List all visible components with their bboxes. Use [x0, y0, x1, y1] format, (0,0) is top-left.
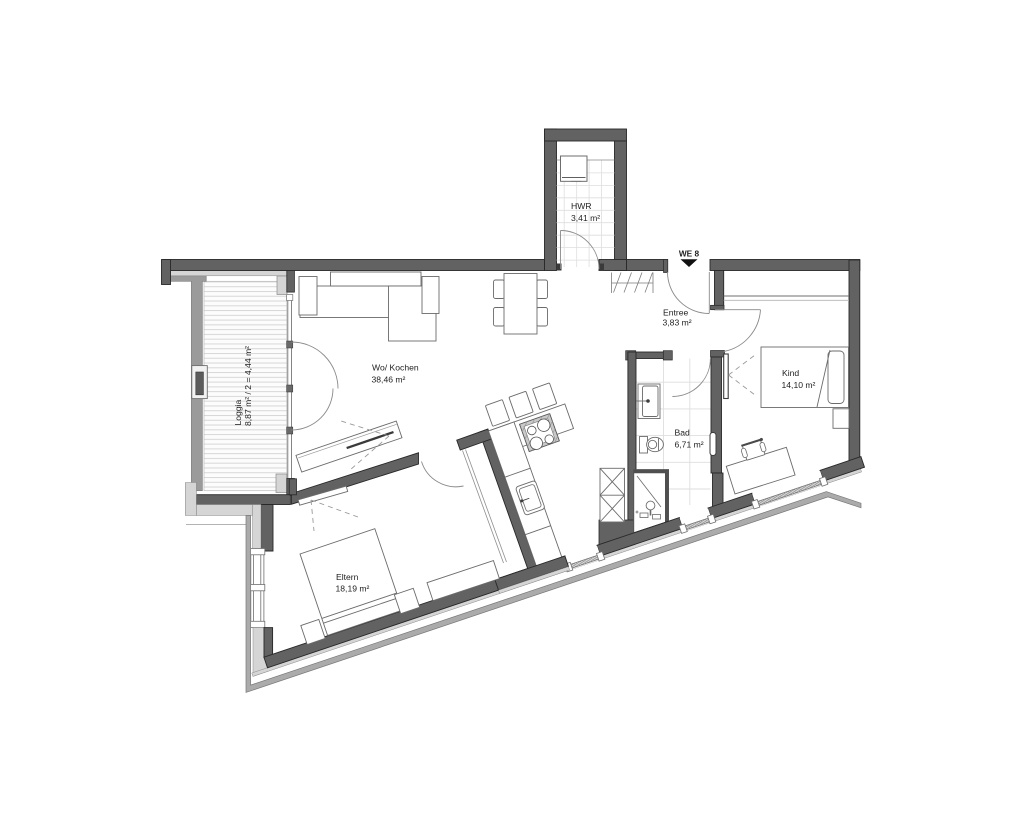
svg-text:Bad: Bad [675, 428, 691, 438]
svg-text:Wo/ Kochen: Wo/ Kochen [372, 363, 419, 373]
svg-text:14,10 m²: 14,10 m² [782, 380, 816, 390]
svg-text:38,46 m²: 38,46 m² [372, 375, 406, 385]
svg-text:WE 8: WE 8 [679, 249, 700, 259]
svg-text:3,41 m²: 3,41 m² [571, 213, 600, 223]
svg-text:18,19 m²: 18,19 m² [336, 584, 370, 594]
svg-text:Entree: Entree [663, 308, 689, 318]
svg-text:Kind: Kind [782, 368, 799, 378]
svg-text:8,87 m² / 2 = 4,44 m²: 8,87 m² / 2 = 4,44 m² [243, 346, 253, 426]
svg-text:6,71 m²: 6,71 m² [675, 440, 704, 450]
svg-text:Loggia: Loggia [233, 399, 243, 425]
svg-text:HWR: HWR [571, 201, 592, 211]
svg-text:Eltern: Eltern [336, 572, 359, 582]
svg-text:3,83 m²: 3,83 m² [663, 318, 692, 328]
